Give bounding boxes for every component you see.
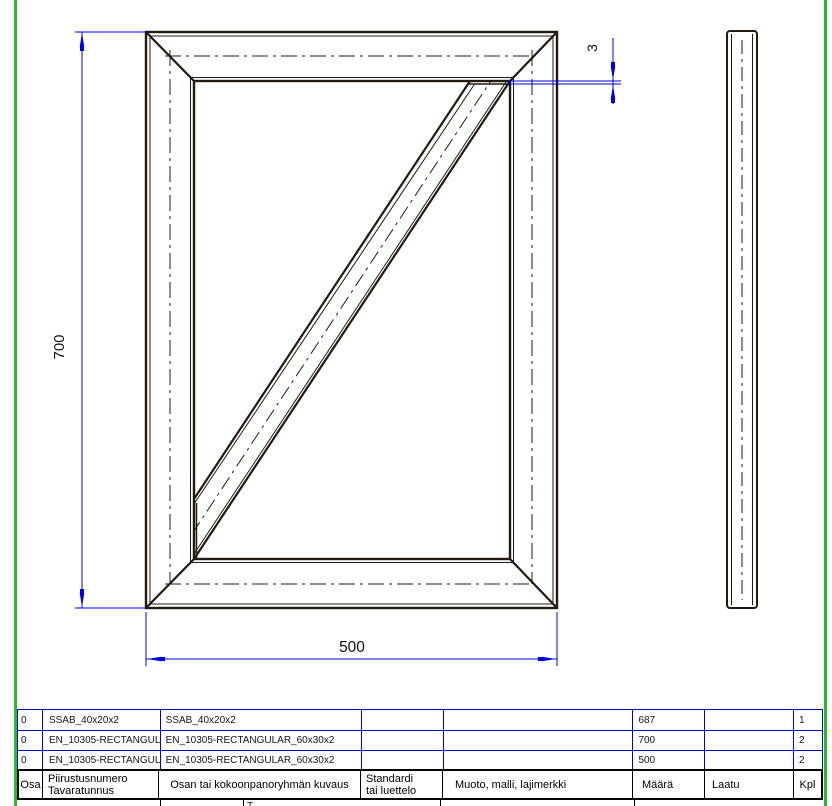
header-drawing-number: Piirustusnumero Tavaratunnus	[43, 771, 159, 798]
brace-upper-edge	[194, 81, 470, 499]
clipped-text-fragment: T	[247, 801, 253, 806]
header-standard: Standardi tai luettelo	[361, 771, 443, 798]
cell-drawing-number: EN_10305-RECTANGULA...	[43, 751, 161, 769]
cell-osa: 0	[18, 731, 43, 750]
dimension-500: 500	[146, 612, 557, 666]
header-label: Standardi	[366, 773, 442, 785]
arrow-tail-square-right	[538, 657, 542, 661]
cell-standard	[362, 710, 444, 730]
cell-quantity: 500	[633, 751, 705, 769]
arrow-tail-square-upper	[611, 62, 615, 66]
dim-text-500: 500	[339, 639, 365, 656]
dim-text-3: 3	[584, 44, 600, 52]
cell-pcs: 1	[794, 710, 822, 730]
header-label: tai luettelo	[366, 785, 442, 797]
header-quantity: Määrä	[633, 771, 705, 798]
cell-standard	[362, 731, 444, 750]
header-label: Tavaratunnus	[48, 785, 158, 797]
cell-osa: 0	[18, 710, 43, 730]
cell-description: SSAB_40x20x2	[161, 710, 362, 730]
cell-standard	[362, 751, 444, 769]
cell-quality	[705, 710, 794, 730]
arrowhead-up	[80, 33, 85, 47]
table-header-row: Osa Piirustusnumero Tavaratunnus Osan ta…	[17, 769, 823, 800]
header-label: Piirustusnumero	[48, 773, 158, 785]
arrowhead-down	[611, 66, 616, 80]
column-divider-stub	[243, 800, 244, 806]
side-view	[727, 31, 757, 608]
cell-shape	[444, 710, 634, 730]
arrow-tail-square-top	[80, 47, 84, 51]
cell-description: EN_10305-RECTANGULAR_60x30x2	[161, 731, 362, 750]
brace-centerline	[192, 70, 498, 534]
cell-pcs: 2	[794, 751, 822, 769]
header-label: Kpl	[800, 779, 816, 791]
header-pcs: Kpl	[794, 771, 821, 798]
cell-osa: 0	[18, 751, 43, 769]
arrowhead-right	[542, 657, 556, 662]
parts-table: 0 SSAB_40x20x2 SSAB_40x20x2 687 1 0 EN_1…	[17, 709, 823, 800]
header-label: Osa	[20, 779, 40, 791]
header-label: Laatu	[712, 779, 793, 791]
header-label: Muoto, malli, lajimerkki	[455, 779, 632, 791]
brace-wall-line-upper	[194, 85, 474, 504]
cell-shape	[444, 751, 634, 769]
arrow-tail-square-bottom	[80, 589, 84, 593]
diagonal-brace	[192, 70, 510, 559]
table-row: 0 EN_10305-RECTANGULA... EN_10305-RECTAN…	[17, 730, 823, 750]
cell-pcs: 2	[794, 731, 822, 750]
brace-wall-line-lower	[194, 76, 510, 554]
arrowhead-down	[80, 593, 85, 607]
cell-shape	[444, 731, 634, 750]
brace-lower-edge	[194, 81, 510, 559]
cell-description: EN_10305-RECTANGULAR_60x30x2	[161, 751, 362, 769]
arrow-tail-square-lower	[611, 99, 615, 103]
arrowhead-up	[611, 85, 616, 99]
arrow-tail-square-left	[161, 657, 165, 661]
header-quality: Laatu	[705, 771, 794, 798]
header-osa: Osa	[19, 771, 43, 798]
dimension-3: 3	[508, 38, 621, 104]
dimension-700: 700	[51, 32, 146, 608]
header-description: Osan tai kokoonpanoryhmän kuvaus	[159, 771, 361, 798]
title-block-partial-row: T	[17, 800, 823, 806]
drawing-canvas: 700 500 3	[0, 0, 832, 710]
table-row: 0 EN_10305-RECTANGULA... EN_10305-RECTAN…	[17, 750, 823, 769]
cell-quantity: 687	[633, 710, 705, 730]
header-label: Osan tai kokoonpanoryhmän kuvaus	[170, 779, 349, 791]
column-divider-stub	[440, 800, 441, 806]
cell-quantity: 700	[633, 731, 705, 750]
cell-drawing-number: SSAB_40x20x2	[43, 710, 161, 730]
arrowhead-left	[147, 657, 161, 662]
table-row: 0 SSAB_40x20x2 SSAB_40x20x2 687 1	[17, 709, 823, 730]
header-shape: Muoto, malli, lajimerkki	[443, 771, 633, 798]
cell-quality	[705, 751, 794, 769]
column-divider-stub	[160, 800, 161, 806]
cad-viewport: 700 500 3 0 SSAB_40x20x2	[0, 0, 832, 806]
column-divider-stub	[634, 800, 635, 806]
cell-quality	[705, 731, 794, 750]
dim-text-700: 700	[51, 334, 68, 359]
header-label: Määrä	[642, 779, 704, 791]
cell-drawing-number: EN_10305-RECTANGULA...	[43, 731, 161, 750]
